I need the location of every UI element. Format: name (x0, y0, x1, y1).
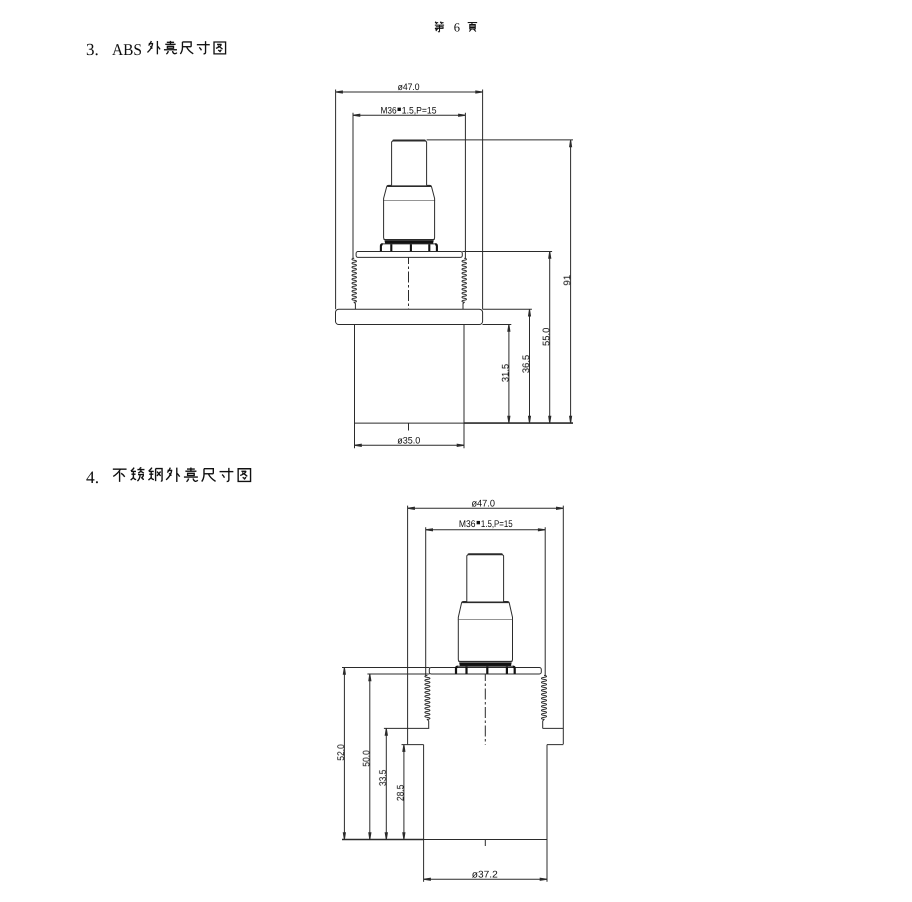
svg-text:ø47.0: ø47.0 (398, 81, 420, 92)
svg-text:55.0: 55.0 (541, 328, 552, 346)
svg-text:M36: M36 (381, 105, 397, 116)
svg-text:1.5,P=15: 1.5,P=15 (402, 105, 437, 116)
svg-text:28.5: 28.5 (396, 785, 407, 802)
svg-text:33.5: 33.5 (378, 770, 389, 787)
svg-text:4.: 4. (86, 467, 99, 487)
svg-text:3.: 3. (86, 40, 99, 59)
svg-text:91: 91 (562, 275, 573, 286)
svg-text:52.0: 52.0 (336, 744, 347, 761)
svg-text:M36: M36 (459, 519, 476, 530)
svg-text:ø35.0: ø35.0 (397, 435, 420, 446)
svg-text:31.5: 31.5 (501, 364, 512, 382)
svg-text:ø47.0: ø47.0 (471, 498, 495, 509)
svg-text:6: 6 (454, 21, 460, 35)
svg-text:1.5,P=15: 1.5,P=15 (481, 519, 513, 530)
svg-text:ø37.2: ø37.2 (472, 870, 498, 881)
svg-text:36.5: 36.5 (521, 355, 532, 373)
svg-text:50.0: 50.0 (361, 750, 372, 767)
svg-text:ABS: ABS (112, 40, 142, 59)
